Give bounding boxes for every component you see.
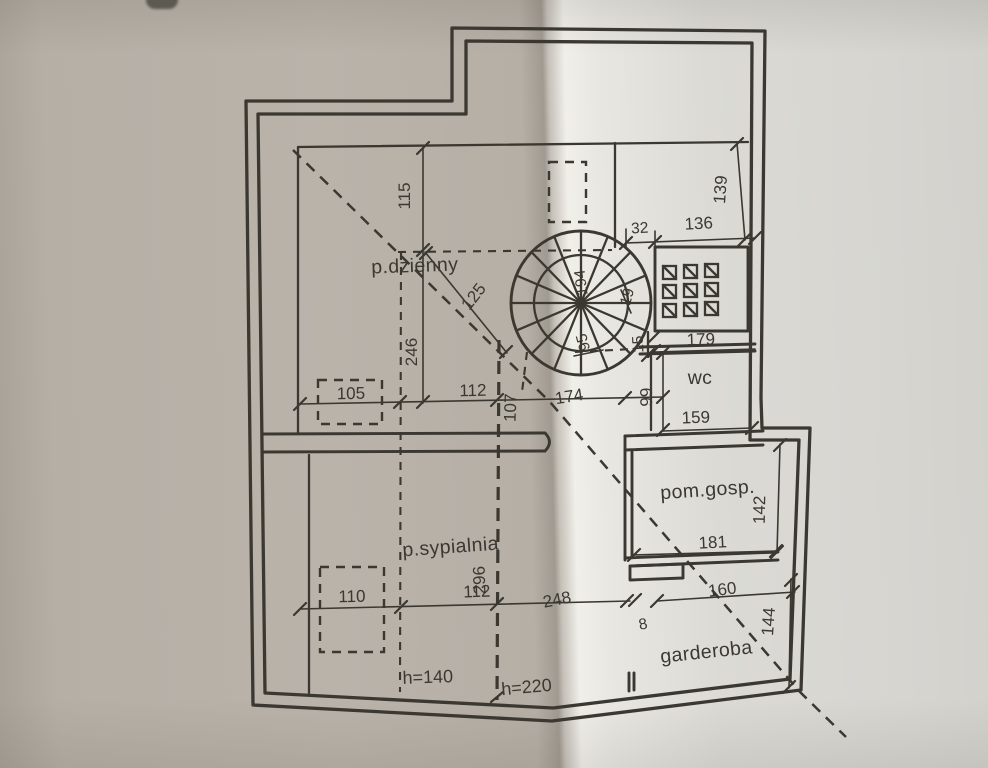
roof-windows (318, 162, 586, 652)
floor-plan-photo: p.dzienny p.sypialnia wc pom.gosp. garde… (0, 0, 988, 768)
dim-8: 8 (637, 615, 649, 633)
room-label-wc: wc (687, 367, 713, 389)
dim-142: 142 (750, 496, 769, 525)
dim-110: 110 (338, 587, 365, 606)
dim-194: 194 (571, 268, 591, 296)
dim-179: 179 (686, 330, 715, 350)
dim-246: 246 (402, 338, 421, 366)
room-label-living: p.dzienny (371, 253, 459, 278)
dim-32: 32 (631, 220, 649, 238)
dim-160: 160 (707, 578, 737, 600)
outer-walls (246, 28, 810, 721)
dim-136: 136 (684, 213, 713, 233)
labels: p.dzienny p.sypialnia wc pom.gosp. garde… (337, 175, 779, 699)
room-label-wardrobe: garderoba (659, 636, 753, 668)
room-face-lines (298, 142, 748, 693)
dim-95: 95 (573, 332, 594, 353)
middle-wall (262, 433, 550, 452)
dim-19: 19 (617, 286, 638, 307)
dim-144: 144 (758, 607, 779, 637)
room-label-utility: pom.gosp. (660, 476, 756, 505)
dim-105: 105 (337, 384, 366, 403)
dim-107: 107 (501, 393, 521, 422)
height-label-low: h=140 (402, 666, 453, 688)
height-label-high: h=220 (500, 675, 552, 699)
dim-159: 159 (681, 408, 710, 428)
shaft-grid (655, 247, 748, 331)
room-label-bedroom: p.sypialnia (402, 533, 500, 562)
dim-99: 99 (637, 387, 656, 406)
dim-181: 181 (698, 532, 727, 552)
dim-112b: 112 (463, 582, 491, 602)
dim-248: 248 (541, 588, 572, 612)
dim-15: 15 (630, 335, 648, 353)
dim-112a: 112 (459, 381, 486, 400)
floor-plan-drawing: p.dzienny p.sypialnia wc pom.gosp. garde… (0, 0, 988, 768)
dim-174: 174 (554, 385, 585, 408)
dimension-lines (294, 138, 799, 702)
dim-125: 125 (457, 280, 489, 314)
dim-139: 139 (710, 175, 731, 205)
dim-115: 115 (395, 182, 414, 209)
